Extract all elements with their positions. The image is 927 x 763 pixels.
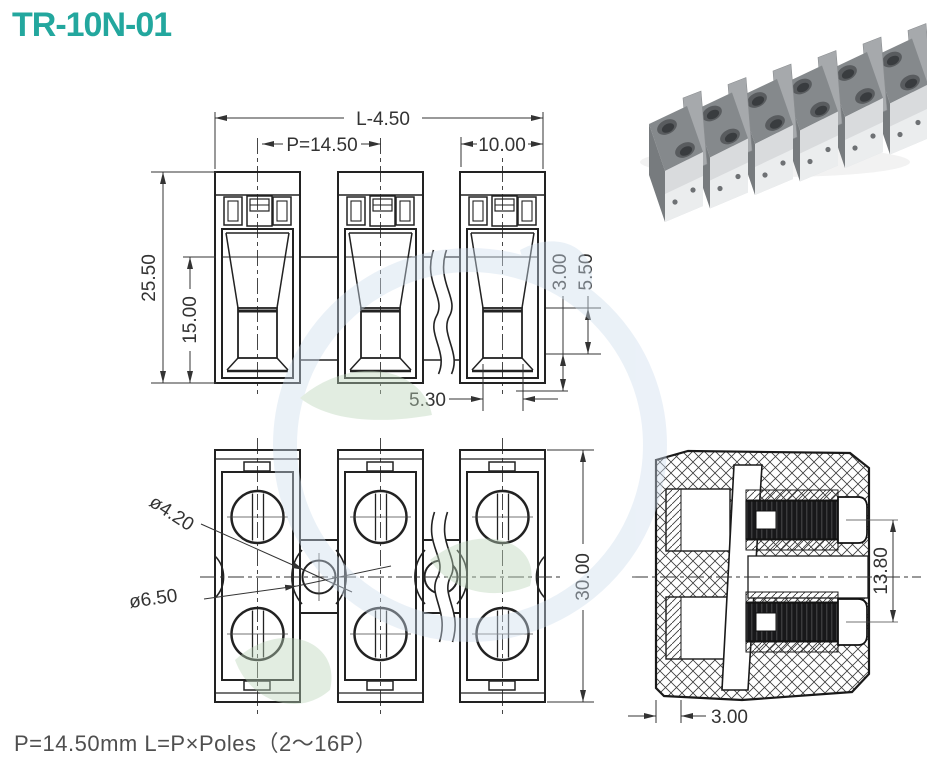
section-view: 13.80 3.00: [628, 451, 921, 728]
dim-overall-height: 25.50: [139, 254, 160, 302]
dim-body-height: 15.00: [180, 296, 201, 344]
part-number-title: TR-10N-01: [12, 6, 171, 45]
dim-mount-hole-dia: ø6.50: [128, 585, 179, 613]
dim-pole-width: 10.00: [478, 135, 526, 156]
technical-drawing: L-4.50 P=14.50 10.00 25.50 15.00 3.00 5.…: [0, 0, 927, 763]
photo-terminal-block: [649, 91, 707, 222]
product-photo: [640, 24, 927, 223]
front-pole-1: [215, 138, 300, 394]
dim-wall-thickness: 3.00: [711, 707, 748, 728]
dim-overall-length: L-4.50: [356, 109, 410, 130]
datasheet-page: L-4.50 P=14.50 10.00 25.50 15.00 3.00 5.…: [0, 0, 927, 763]
dim-contact-pitch: 13.80: [871, 547, 892, 595]
pitch-formula-note: P=14.50mm L=P×Poles（2～16P）: [14, 726, 377, 758]
dim-screw-hole-dia: ø4.20: [145, 492, 197, 536]
dim-pitch: P=14.50: [286, 135, 357, 156]
